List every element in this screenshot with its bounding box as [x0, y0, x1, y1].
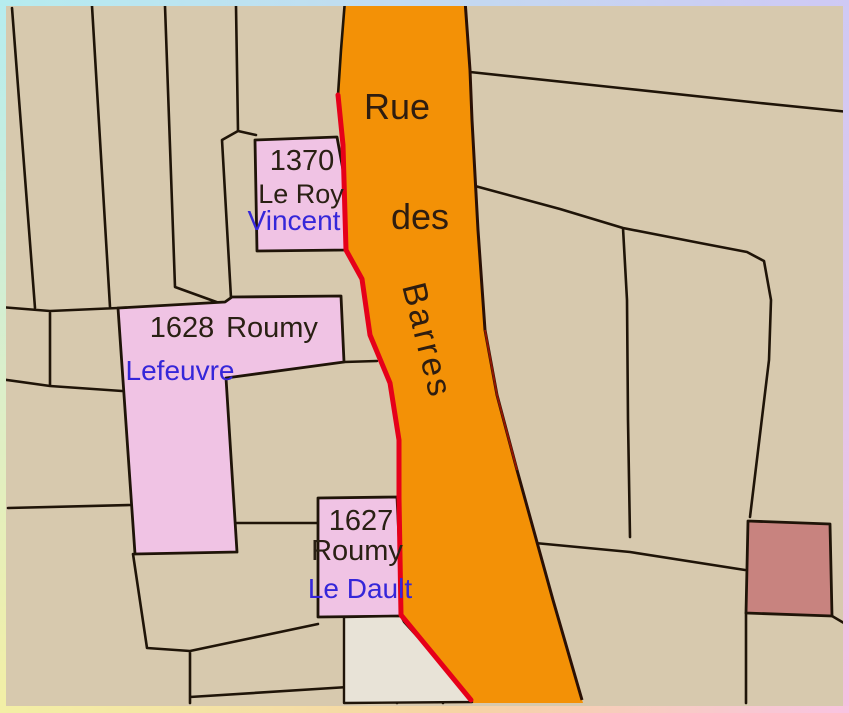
- map-frame: Rue des Barres 1370 Le Roy Vincent 1628 …: [0, 0, 849, 713]
- parcel-1627-owner: Roumy: [311, 535, 403, 567]
- street-label-rue: Rue: [364, 86, 430, 127]
- street-label-des: des: [391, 196, 449, 237]
- parcel-1627-occupant: Le Dault: [308, 573, 413, 604]
- parcel-1370-number: 1370: [270, 145, 335, 177]
- parcel-1628-occupant: Lefeuvre: [126, 355, 235, 386]
- parcel-1628-number: 1628: [150, 312, 215, 344]
- parcel-1628-owner: Roumy: [226, 312, 318, 344]
- parcel-unlabeled-mauve: [746, 521, 832, 616]
- parcel-1370-occupant: Vincent: [248, 205, 341, 236]
- parcel-1627-number: 1627: [329, 505, 394, 537]
- cadastral-map: Rue des Barres 1370 Le Roy Vincent 1628 …: [0, 0, 849, 713]
